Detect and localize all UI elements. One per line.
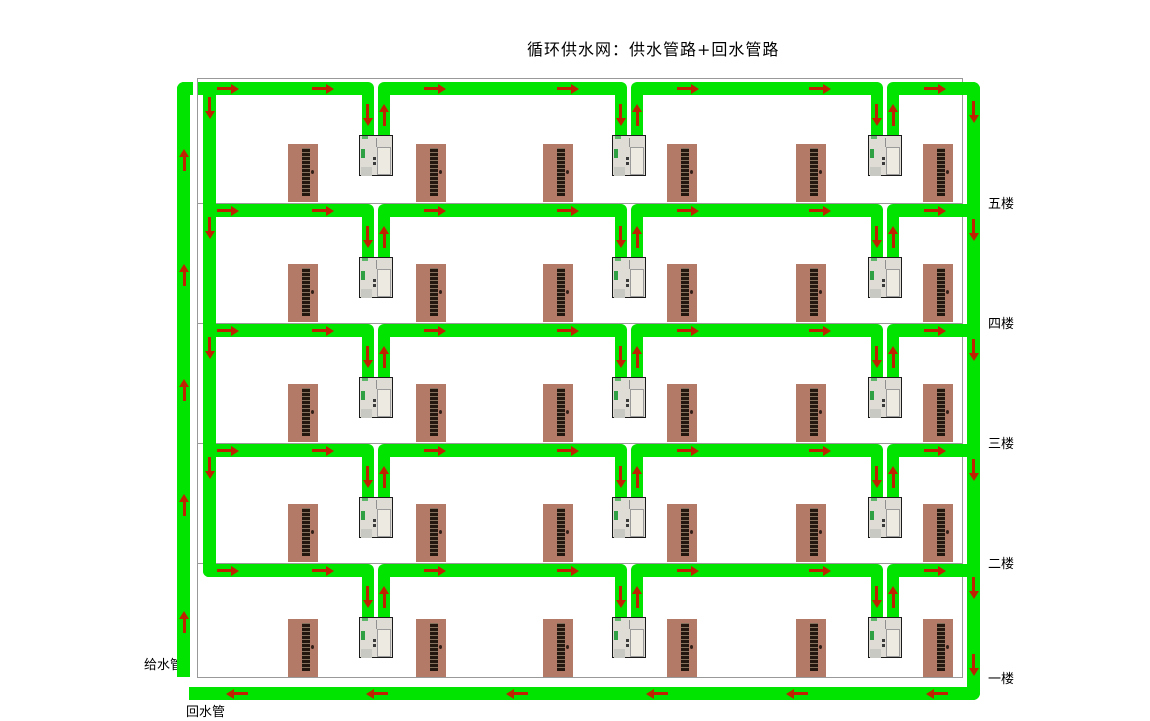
flow-arrow-right-icon (809, 84, 831, 94)
flow-arrow-right-icon (809, 446, 831, 456)
dispenser-top-light (362, 618, 368, 621)
flow-arrow-right-icon (217, 446, 239, 456)
door-knob (690, 170, 693, 174)
water-dispenser (359, 617, 393, 658)
flow-arrow-up-icon (632, 104, 642, 126)
door-knob (566, 170, 569, 174)
water-dispenser (868, 377, 902, 418)
water-dispenser (612, 617, 646, 658)
dispenser-base (614, 649, 625, 658)
dispenser-tap (373, 404, 376, 407)
door-sign (557, 508, 565, 556)
flow-arrow-right-icon (217, 84, 239, 94)
dispenser-tap (373, 524, 376, 527)
return-pipe (189, 687, 980, 700)
dispenser-indicator (361, 391, 365, 400)
door-knob (439, 410, 442, 414)
door-knob (819, 410, 822, 414)
door-sign (681, 623, 689, 671)
dispenser-tap (626, 644, 629, 647)
flow-arrow-right-icon (809, 566, 831, 576)
dispenser-indicator (870, 631, 874, 640)
door (543, 384, 573, 442)
flow-arrow-down-icon (969, 654, 979, 676)
dispenser-seam (376, 260, 377, 269)
door (796, 619, 826, 677)
dispenser-door-panel (377, 147, 391, 175)
flow-arrow-right-icon (677, 326, 699, 336)
flow-arrow-right-icon (924, 206, 946, 216)
flow-arrow-right-icon (424, 326, 446, 336)
flow-arrow-right-icon (557, 326, 579, 336)
dispenser-top-light (615, 618, 621, 621)
floor-label: 二楼 (988, 553, 1028, 569)
door (667, 619, 697, 677)
dispenser-top-light (871, 136, 877, 139)
flow-arrow-down-icon (205, 457, 215, 479)
water-dispenser (359, 497, 393, 538)
flow-arrow-down-icon (872, 226, 882, 248)
flow-arrow-up-icon (888, 346, 898, 368)
water-dispenser (359, 377, 393, 418)
door (288, 264, 318, 322)
door-sign (810, 148, 818, 196)
door-knob (311, 530, 314, 534)
dispenser-top-light (615, 378, 621, 381)
wall-line (197, 82, 198, 95)
flow-arrow-down-icon (205, 337, 215, 359)
door-sign (681, 508, 689, 556)
dispenser-indicator (614, 271, 618, 280)
dispenser-tap (626, 279, 629, 282)
dispenser-indicator (870, 271, 874, 280)
flow-arrow-up-icon (888, 586, 898, 608)
door-sign (810, 388, 818, 436)
door (923, 504, 953, 562)
door-knob (819, 530, 822, 534)
flow-arrow-right-icon (557, 566, 579, 576)
flow-arrow-right-icon (809, 206, 831, 216)
dispenser-top-light (871, 258, 877, 261)
flow-arrow-down-icon (363, 346, 373, 368)
dispenser-tap (373, 157, 376, 160)
door-sign (302, 388, 310, 436)
door-knob (566, 410, 569, 414)
door-knob (439, 645, 442, 649)
door (416, 619, 446, 677)
dispenser-indicator (361, 271, 365, 280)
door-sign (302, 148, 310, 196)
door (667, 384, 697, 442)
door-knob (946, 410, 949, 414)
flow-arrow-down-icon (205, 217, 215, 239)
dispenser-base (614, 167, 625, 176)
door-sign (810, 623, 818, 671)
flow-arrow-down-icon (205, 97, 215, 119)
flow-arrow-right-icon (217, 206, 239, 216)
dispenser-tap (626, 524, 629, 527)
dispenser-tap (882, 639, 885, 642)
dispenser-tap (373, 399, 376, 402)
door (796, 264, 826, 322)
flow-arrow-down-icon (616, 346, 626, 368)
door-sign (557, 148, 565, 196)
diagram: 循环供水网：供水管路+回水管路 给水管 回水管 五楼四楼三楼二楼一楼 (0, 0, 1150, 721)
dispenser-indicator (361, 511, 365, 520)
flow-arrow-right-icon (424, 206, 446, 216)
flow-arrow-down-icon (616, 466, 626, 488)
dispenser-tap (373, 284, 376, 287)
flow-arrow-right-icon (924, 326, 946, 336)
dispenser-tap (626, 639, 629, 642)
dispenser-seam (885, 138, 886, 147)
floor-label: 一楼 (988, 668, 1028, 684)
door-knob (946, 530, 949, 534)
dispenser-top-light (362, 378, 368, 381)
flow-arrow-up-icon (379, 586, 389, 608)
dispenser-top-light (871, 498, 877, 501)
door (288, 619, 318, 677)
door-sign (557, 623, 565, 671)
flow-arrow-down-icon (969, 101, 979, 123)
dispenser-base (870, 289, 881, 298)
door-sign (937, 268, 945, 316)
dispenser-indicator (614, 391, 618, 400)
door-knob (690, 530, 693, 534)
flow-arrow-right-icon (312, 84, 334, 94)
door-sign (810, 268, 818, 316)
dispenser-seam (885, 500, 886, 509)
dispenser-top-light (615, 498, 621, 501)
dispenser-indicator (870, 391, 874, 400)
dispenser-tap (882, 399, 885, 402)
flow-arrow-down-icon (872, 346, 882, 368)
door-knob (690, 645, 693, 649)
flow-arrow-left-icon (506, 689, 528, 699)
dispenser-door-panel (886, 389, 900, 417)
door-knob (690, 290, 693, 294)
flow-arrow-down-icon (616, 586, 626, 608)
flow-arrow-right-icon (424, 446, 446, 456)
dispenser-base (361, 289, 372, 298)
door-knob (946, 290, 949, 294)
dispenser-seam (629, 620, 630, 629)
door-sign (937, 508, 945, 556)
door-sign (937, 388, 945, 436)
dispenser-door-panel (630, 629, 644, 657)
dispenser-seam (885, 620, 886, 629)
flow-arrow-down-icon (363, 104, 373, 126)
flow-arrow-right-icon (924, 84, 946, 94)
flow-arrow-right-icon (312, 326, 334, 336)
flow-arrow-right-icon (312, 566, 334, 576)
dispenser-tap (882, 284, 885, 287)
dispenser-base (614, 289, 625, 298)
door-knob (690, 410, 693, 414)
dispenser-tap (373, 162, 376, 165)
dispenser-base (870, 409, 881, 418)
dispenser-door-panel (377, 509, 391, 537)
dispenser-door-panel (630, 147, 644, 175)
flow-arrow-up-icon (632, 226, 642, 248)
dispenser-base (870, 167, 881, 176)
dispenser-base (361, 409, 372, 418)
flow-arrow-down-icon (616, 226, 626, 248)
door-sign (810, 508, 818, 556)
dispenser-door-panel (630, 269, 644, 297)
door (667, 144, 697, 202)
dispenser-base (870, 649, 881, 658)
flow-arrow-right-icon (677, 446, 699, 456)
dispenser-seam (376, 380, 377, 389)
dispenser-indicator (614, 631, 618, 640)
dispenser-tap (373, 644, 376, 647)
flow-arrow-right-icon (809, 326, 831, 336)
flow-arrow-right-icon (217, 566, 239, 576)
flow-arrow-down-icon (872, 466, 882, 488)
door-knob (819, 290, 822, 294)
door-knob (946, 645, 949, 649)
dispenser-top-light (362, 258, 368, 261)
door-knob (311, 170, 314, 174)
dispenser-seam (376, 500, 377, 509)
flow-arrow-down-icon (969, 459, 979, 481)
dispenser-top-light (615, 258, 621, 261)
flow-arrow-up-icon (179, 611, 189, 633)
flow-arrow-down-icon (616, 104, 626, 126)
door-sign (557, 388, 565, 436)
dispenser-seam (629, 260, 630, 269)
dispenser-base (361, 529, 372, 538)
flow-arrow-right-icon (557, 446, 579, 456)
water-dispenser (868, 617, 902, 658)
water-dispenser (612, 135, 646, 176)
dispenser-seam (885, 380, 886, 389)
door-sign (430, 623, 438, 671)
flow-arrow-down-icon (363, 226, 373, 248)
dispenser-door-panel (377, 269, 391, 297)
door (288, 504, 318, 562)
dispenser-base (870, 529, 881, 538)
dispenser-door-panel (377, 629, 391, 657)
flow-arrow-right-icon (557, 206, 579, 216)
dispenser-indicator (870, 149, 874, 158)
flow-arrow-right-icon (312, 206, 334, 216)
dispenser-tap (882, 404, 885, 407)
door (796, 504, 826, 562)
flow-arrow-up-icon (379, 346, 389, 368)
dispenser-tap (626, 404, 629, 407)
flow-arrow-up-icon (179, 379, 189, 401)
floor-label: 五楼 (988, 193, 1028, 209)
door-knob (566, 530, 569, 534)
dispenser-seam (629, 500, 630, 509)
door-knob (439, 530, 442, 534)
water-dispenser (612, 257, 646, 298)
door-sign (430, 508, 438, 556)
dispenser-top-light (615, 136, 621, 139)
door (543, 504, 573, 562)
dispenser-tap (626, 162, 629, 165)
diagram-elements: 五楼四楼三楼二楼一楼 (0, 0, 1150, 721)
dispenser-tap (626, 157, 629, 160)
flow-arrow-up-icon (888, 466, 898, 488)
flow-arrow-right-icon (424, 84, 446, 94)
water-dispenser (868, 497, 902, 538)
door-sign (302, 268, 310, 316)
return-riser-pipe (967, 82, 980, 700)
water-dispenser (612, 497, 646, 538)
dispenser-door-panel (630, 509, 644, 537)
door-knob (566, 290, 569, 294)
door-knob (311, 645, 314, 649)
water-dispenser (359, 135, 393, 176)
flow-arrow-left-icon (646, 689, 668, 699)
door (796, 144, 826, 202)
dispenser-indicator (614, 511, 618, 520)
door (923, 384, 953, 442)
door-knob (946, 170, 949, 174)
dispenser-tap (882, 644, 885, 647)
dispenser-door-panel (886, 269, 900, 297)
water-dispenser (359, 257, 393, 298)
dispenser-tap (373, 279, 376, 282)
dispenser-top-light (871, 378, 877, 381)
floor-label: 四楼 (988, 313, 1028, 329)
door (416, 384, 446, 442)
door (667, 264, 697, 322)
dispenser-top-light (871, 618, 877, 621)
dispenser-top-light (362, 136, 368, 139)
flow-arrow-right-icon (557, 84, 579, 94)
flow-arrow-up-icon (179, 264, 189, 286)
floor-supply-pipe (177, 82, 362, 95)
door (923, 144, 953, 202)
door-knob (819, 170, 822, 174)
flow-arrow-left-icon (786, 689, 808, 699)
dispenser-door-panel (377, 389, 391, 417)
flow-arrow-right-icon (677, 84, 699, 94)
flow-arrow-right-icon (677, 566, 699, 576)
dispenser-indicator (361, 149, 365, 158)
flow-arrow-right-icon (217, 326, 239, 336)
water-dispenser (868, 257, 902, 298)
flow-arrow-left-icon (226, 689, 248, 699)
flow-arrow-right-icon (424, 566, 446, 576)
dispenser-tap (626, 399, 629, 402)
door (288, 144, 318, 202)
flow-arrow-up-icon (632, 466, 642, 488)
door-sign (681, 268, 689, 316)
water-dispenser (612, 377, 646, 418)
dispenser-indicator (870, 511, 874, 520)
dispenser-seam (629, 138, 630, 147)
door (923, 619, 953, 677)
flow-arrow-down-icon (363, 586, 373, 608)
door-sign (557, 268, 565, 316)
flow-arrow-up-icon (379, 466, 389, 488)
door (667, 504, 697, 562)
dispenser-tap (882, 162, 885, 165)
dispenser-door-panel (886, 147, 900, 175)
flow-arrow-down-icon (969, 219, 979, 241)
dispenser-seam (629, 380, 630, 389)
dispenser-tap (626, 519, 629, 522)
floor-label: 三楼 (988, 433, 1028, 449)
dispenser-top-light (362, 498, 368, 501)
door (923, 264, 953, 322)
dispenser-door-panel (886, 509, 900, 537)
flow-arrow-up-icon (379, 226, 389, 248)
door (543, 264, 573, 322)
door-sign (302, 623, 310, 671)
flow-arrow-down-icon (363, 466, 373, 488)
dispenser-seam (376, 620, 377, 629)
door-knob (439, 170, 442, 174)
door-knob (311, 290, 314, 294)
door (416, 264, 446, 322)
dispenser-tap (882, 279, 885, 282)
flow-arrow-down-icon (969, 339, 979, 361)
dispenser-base (361, 649, 372, 658)
flow-arrow-left-icon (366, 689, 388, 699)
flow-arrow-up-icon (632, 586, 642, 608)
dispenser-seam (885, 260, 886, 269)
dispenser-seam (376, 138, 377, 147)
flow-arrow-up-icon (632, 346, 642, 368)
dispenser-base (614, 529, 625, 538)
flow-arrow-right-icon (312, 446, 334, 456)
dispenser-tap (373, 519, 376, 522)
door-knob (439, 290, 442, 294)
dispenser-base (361, 167, 372, 176)
door-sign (302, 508, 310, 556)
flow-arrow-down-icon (872, 104, 882, 126)
door (416, 504, 446, 562)
flow-arrow-left-icon (926, 689, 948, 699)
dispenser-tap (882, 519, 885, 522)
dispenser-tap (626, 284, 629, 287)
flow-arrow-right-icon (924, 566, 946, 576)
door-sign (937, 148, 945, 196)
door (543, 619, 573, 677)
door (543, 144, 573, 202)
flow-arrow-down-icon (969, 577, 979, 599)
door-knob (819, 645, 822, 649)
dispenser-base (614, 409, 625, 418)
door-sign (430, 268, 438, 316)
dispenser-tap (882, 524, 885, 527)
door-sign (937, 623, 945, 671)
flow-arrow-up-icon (888, 226, 898, 248)
door (796, 384, 826, 442)
door-sign (681, 148, 689, 196)
door-knob (566, 645, 569, 649)
flow-arrow-right-icon (677, 206, 699, 216)
dispenser-indicator (614, 149, 618, 158)
flow-arrow-down-icon (872, 586, 882, 608)
dispenser-tap (882, 157, 885, 160)
water-dispenser (868, 135, 902, 176)
door (288, 384, 318, 442)
flow-arrow-up-icon (179, 494, 189, 516)
flow-arrow-up-icon (179, 149, 189, 171)
dispenser-door-panel (886, 629, 900, 657)
flow-arrow-up-icon (379, 104, 389, 126)
dispenser-indicator (361, 631, 365, 640)
dispenser-tap (373, 639, 376, 642)
dispenser-door-panel (630, 389, 644, 417)
